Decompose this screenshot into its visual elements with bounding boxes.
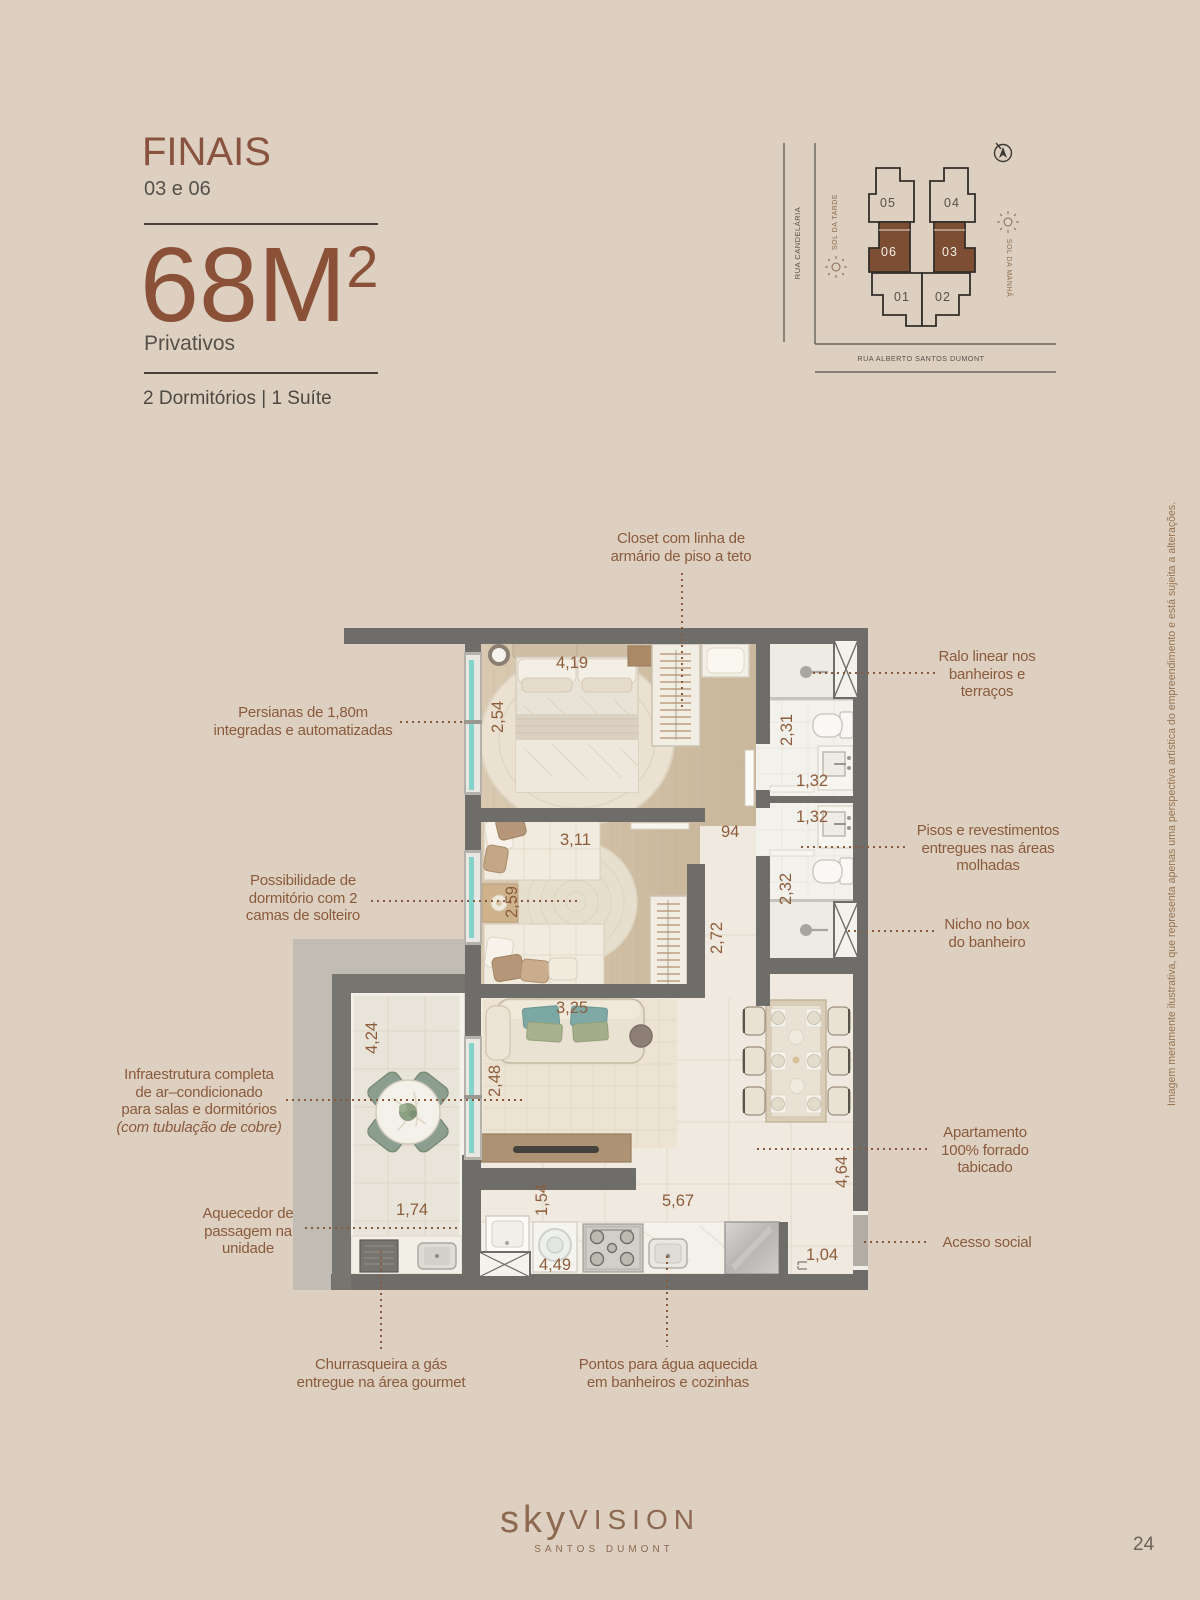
svg-text:2,72: 2,72	[708, 922, 726, 954]
svg-text:3,25: 3,25	[556, 999, 588, 1017]
svg-text:02: 02	[935, 290, 951, 304]
svg-text:SOL DA MANHÃ: SOL DA MANHÃ	[1005, 239, 1014, 297]
svg-text:05: 05	[880, 196, 896, 210]
svg-text:SOL DA TARDE: SOL DA TARDE	[832, 194, 839, 250]
svg-text:04: 04	[944, 196, 960, 210]
svg-text:1,32: 1,32	[796, 808, 828, 826]
svg-text:06: 06	[881, 245, 897, 259]
svg-text:5,67: 5,67	[662, 1192, 694, 1210]
svg-text:3,11: 3,11	[560, 831, 591, 849]
svg-text:4,49: 4,49	[539, 1256, 571, 1274]
svg-text:03: 03	[942, 245, 958, 259]
svg-text:94: 94	[721, 823, 739, 841]
svg-text:01: 01	[894, 290, 910, 304]
svg-text:2,54: 2,54	[489, 701, 507, 733]
svg-text:1,74: 1,74	[396, 1201, 428, 1219]
svg-text:2,59: 2,59	[503, 886, 521, 918]
svg-text:2,32: 2,32	[777, 873, 795, 905]
svg-text:1,32: 1,32	[796, 772, 828, 790]
svg-text:1,54: 1,54	[533, 1184, 551, 1216]
svg-text:1,04: 1,04	[806, 1246, 838, 1264]
svg-text:4,64: 4,64	[833, 1156, 851, 1188]
svg-text:2,48: 2,48	[486, 1065, 504, 1097]
svg-text:4,19: 4,19	[556, 654, 588, 672]
svg-text:RUA ALBERTO SANTOS DUMONT: RUA ALBERTO SANTOS DUMONT	[857, 354, 984, 363]
svg-text:4,24: 4,24	[363, 1022, 381, 1054]
svg-text:RUA CANDELÁRIA: RUA CANDELÁRIA	[793, 207, 802, 279]
svg-text:2,31: 2,31	[778, 714, 796, 746]
